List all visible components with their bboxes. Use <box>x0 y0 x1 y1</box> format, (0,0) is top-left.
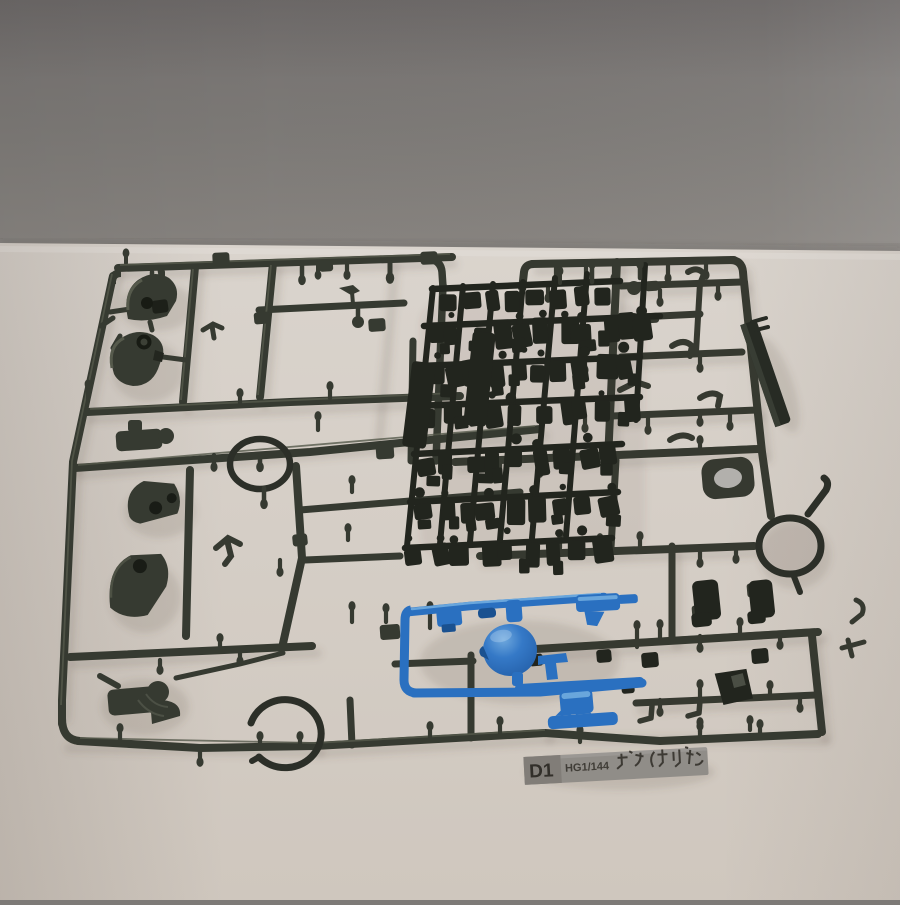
svg-text:D1: D1 <box>529 760 555 782</box>
svg-text:HG1/144: HG1/144 <box>565 760 610 774</box>
